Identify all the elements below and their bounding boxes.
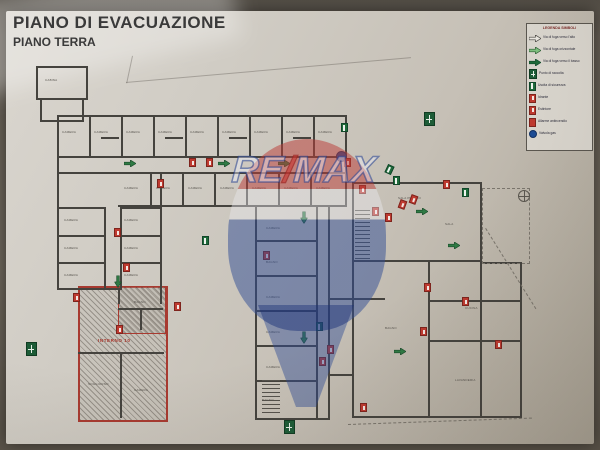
wall-segment [328, 205, 330, 420]
legend-label: Allarme antincendio [538, 120, 567, 123]
extinguisher-marker [424, 283, 431, 292]
room-label: CAMERA [64, 273, 78, 277]
legend-box: LEGENDA SIMBOLI Via di fuga verso l'alto… [526, 23, 593, 151]
room-label: BAGNO [385, 326, 397, 330]
legend-label: Valvola gas [539, 132, 556, 135]
room-label: BAGNO [262, 398, 274, 402]
wall-segment [57, 262, 104, 264]
emergency-exit-icon [529, 82, 536, 91]
legend-row: Estintore [529, 104, 590, 116]
room-label: CAMERA [284, 186, 298, 190]
wall-segment [57, 156, 347, 158]
extinguisher-marker [319, 357, 326, 366]
legend-label: Via di fuga orizzontale [543, 48, 575, 51]
wall-segment [229, 137, 247, 139]
escape-route-arrow-marker [394, 348, 406, 355]
wall-segment [165, 137, 183, 139]
wall-segment [121, 117, 123, 156]
wall-segment [140, 308, 142, 330]
wall-segment [153, 117, 155, 156]
gas-valve-icon [529, 130, 537, 138]
room-label: SOGGIORNO [88, 382, 109, 386]
wall-segment [160, 288, 162, 304]
room-label: CAMERA [188, 186, 202, 190]
wall-segment [185, 117, 187, 156]
room-label: CAMERA [220, 186, 234, 190]
wall-segment [217, 117, 219, 156]
room-label: CAMERA [266, 365, 280, 369]
extinguisher-marker [420, 327, 427, 336]
wall-segment [182, 174, 184, 205]
hydrant-icon [529, 94, 536, 103]
wall-segment [257, 310, 316, 312]
wall-segment [57, 207, 104, 209]
wall-segment [430, 300, 522, 302]
extinguisher-marker [206, 158, 213, 167]
legend-row: Uscita di sicurezza [529, 80, 590, 92]
room-label: CAMERA [254, 130, 268, 134]
legend-items: Via di fuga verso l'altoVia di fuga oriz… [529, 32, 590, 140]
extinguisher-marker [189, 158, 196, 167]
room-label: CAMERA [134, 388, 148, 392]
room-label: CAMERA [286, 130, 300, 134]
wall-segment [57, 288, 122, 290]
hatched-unit-area-upper [118, 286, 166, 334]
wall-segment [278, 174, 280, 205]
legend-label: Via di fuga verso l'alto [543, 36, 575, 39]
wall-segment [293, 137, 311, 139]
room-label: CAMERA [64, 218, 78, 222]
extinguisher-marker [174, 302, 181, 311]
legend-label: Estintore [538, 108, 551, 111]
wall-segment [352, 182, 482, 184]
escape-route-arrow-marker [301, 332, 308, 344]
room-label: CAMERA [124, 273, 138, 277]
extinguisher-marker [360, 403, 367, 412]
extinguisher-marker [73, 293, 80, 302]
extinguisher-marker [344, 158, 351, 167]
stairs [355, 210, 370, 260]
extinguisher-marker [495, 340, 502, 349]
page-subtitle: PIANO TERRA [13, 35, 226, 49]
emergency-exit-marker [393, 176, 400, 185]
legend-row: Valvola gas [529, 128, 590, 140]
wall-segment [82, 100, 84, 122]
plan-title-block: PIANO DI EVACUAZIONE PIANO TERRA [13, 13, 226, 49]
wall-segment [120, 354, 122, 418]
room-label: CUCINA [465, 306, 478, 310]
room-label: BAGNO [266, 260, 278, 264]
wall-segment [89, 117, 91, 156]
wall-segment [36, 66, 38, 100]
extinguisher-marker [327, 345, 334, 354]
room-label: CAMERA [126, 130, 140, 134]
wall-segment [122, 235, 160, 237]
wall-segment [57, 115, 347, 117]
room-label: CAMERA [124, 218, 138, 222]
room-label: CAMERA [222, 130, 236, 134]
wall-segment [104, 207, 106, 288]
wall-segment [101, 137, 119, 139]
room-label: CAMERA [124, 186, 138, 190]
wall-segment [40, 100, 42, 122]
wall-segment [150, 174, 152, 205]
extinguisher-marker [372, 207, 379, 216]
page-title: PIANO DI EVACUAZIONE [13, 13, 226, 33]
wall-segment [352, 182, 354, 418]
wall-segment [313, 117, 315, 156]
extinguisher-marker [123, 263, 130, 272]
wall-segment [57, 172, 347, 174]
assembly-point-icon [529, 69, 537, 79]
wall-segment [316, 205, 318, 420]
legend-row: Allarme antincendio [529, 116, 590, 128]
room-label: CAMERA [94, 130, 108, 134]
room-label: CAMERA [316, 186, 330, 190]
wall-segment [330, 374, 352, 376]
wall-segment [330, 298, 385, 300]
extinguisher-marker [157, 179, 164, 188]
room-label: CABINA [45, 78, 57, 82]
extinguisher-marker [263, 251, 270, 260]
wall-segment [257, 275, 316, 277]
wall-segment [40, 120, 84, 122]
room-label: CAMERA [64, 246, 78, 250]
extinguisher-marker [385, 213, 392, 222]
emergency-exit-marker [462, 188, 469, 197]
room-label: CAMERA [252, 186, 266, 190]
wall-segment [352, 260, 482, 262]
room-label: SALA [445, 222, 453, 226]
wall-segment [310, 174, 312, 205]
wall-segment [118, 288, 120, 304]
extinguisher-icon [529, 106, 536, 115]
fire-alarm-icon [529, 118, 536, 127]
legend-row: Idrante [529, 92, 590, 104]
wall-segment [430, 340, 522, 342]
room-label: CAMERA [266, 295, 280, 299]
wall-segment [281, 117, 283, 156]
wall-segment [122, 207, 160, 209]
legend-row: Via di fuga verso il basso [529, 56, 590, 68]
north-survey-marker [518, 190, 530, 202]
room-label: BAGNO [134, 300, 146, 304]
escape-route-arrow-marker [301, 212, 308, 224]
escape-route-arrow-marker [448, 242, 460, 249]
room-label: CAMERA [158, 130, 172, 134]
escape-route-arrow-marker [278, 160, 290, 167]
legend-label: Punto di raccolta [539, 72, 564, 75]
assembly-point-marker [26, 342, 37, 356]
wall-segment [257, 345, 316, 347]
assembly-point-marker [284, 420, 295, 434]
wall-segment [214, 174, 216, 205]
extinguisher-marker [359, 185, 366, 194]
wall-segment [36, 66, 88, 68]
room-label: CAMERA [266, 226, 280, 230]
escape-route-arrow-marker [115, 276, 122, 288]
room-label: CAMERA [124, 246, 138, 250]
emergency-exit-marker [341, 123, 348, 132]
emergency-exit-marker [202, 236, 209, 245]
wall-segment [257, 240, 316, 242]
emergency-exit-marker [316, 322, 323, 331]
legend-label: Uscita di sicurezza [538, 84, 565, 87]
wall-segment [57, 235, 104, 237]
room-label: CAMERA [62, 130, 76, 134]
photographed-evacuation-plan: PIANO DI EVACUAZIONE PIANO TERRA LEGENDA… [0, 0, 600, 450]
hatched-unit-label: INTERNO 10 [98, 338, 131, 343]
room-label: CAMERA [266, 330, 280, 334]
wall-segment [36, 98, 88, 100]
escape-route-arrow-marker [218, 160, 230, 167]
extinguisher-marker [462, 297, 469, 306]
room-label: LAVANDERIA [455, 378, 476, 382]
wall-segment [246, 174, 248, 205]
wall-segment [249, 117, 251, 156]
wall-segment [86, 66, 88, 100]
legend-label: Via di fuga verso il basso [543, 60, 580, 63]
legend-label: Idrante [538, 96, 548, 99]
extinguisher-marker [114, 228, 121, 237]
escape-route-arrow-marker [124, 160, 136, 167]
extinguisher-marker [443, 180, 450, 189]
extinguisher-marker [116, 325, 123, 334]
room-label: CAMERA [318, 130, 332, 134]
room-label: CAMERA [190, 130, 204, 134]
escape-route-arrow-marker [416, 208, 428, 215]
assembly-point-marker [424, 112, 435, 126]
wall-segment [352, 416, 522, 418]
